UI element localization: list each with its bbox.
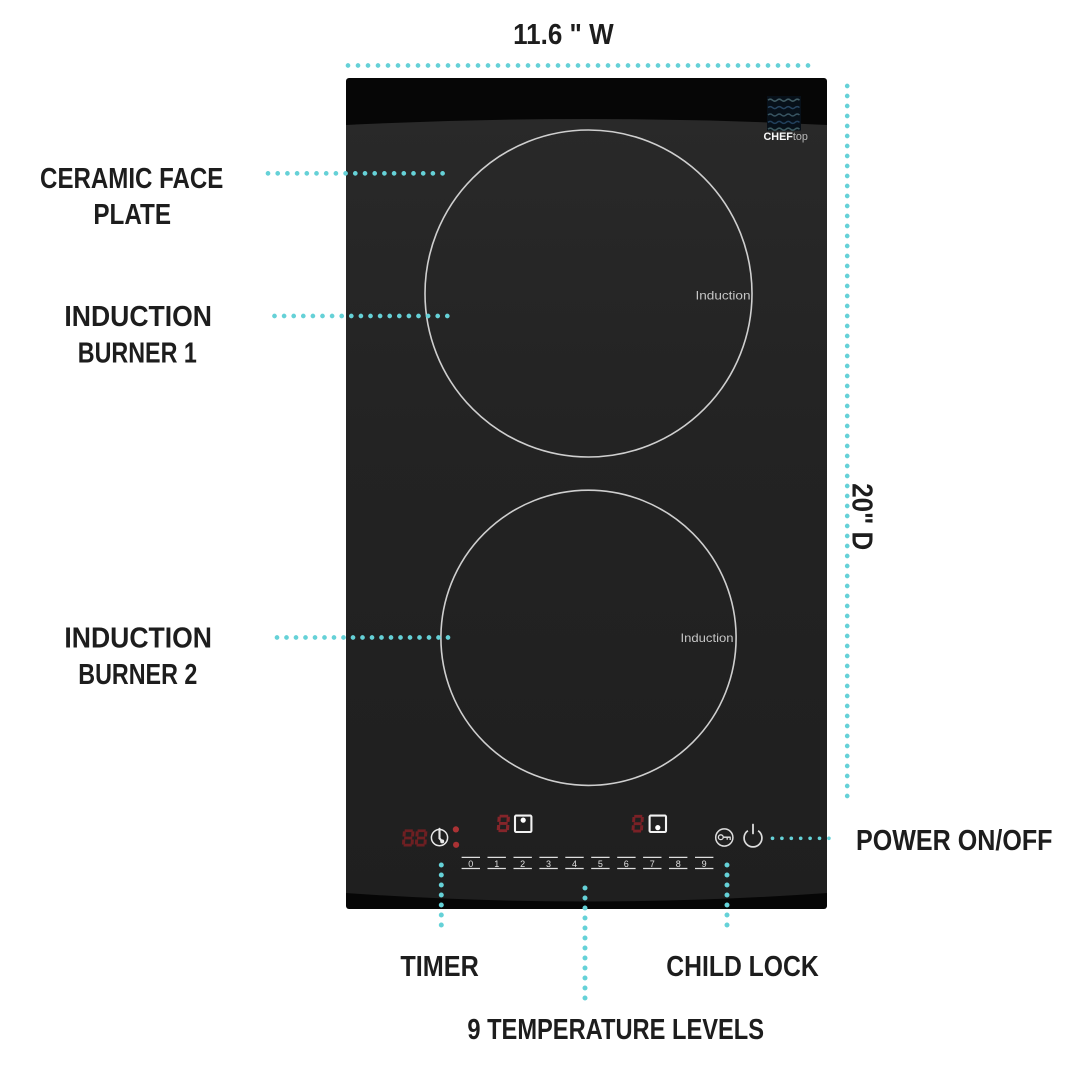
svg-text:7: 7: [650, 859, 655, 869]
svg-text:PLATE: PLATE: [93, 199, 171, 231]
svg-text:9 TEMPERATURE LEVELS: 9 TEMPERATURE LEVELS: [467, 1014, 764, 1046]
svg-text:INDUCTION: INDUCTION: [64, 301, 212, 333]
svg-text:0: 0: [468, 859, 473, 869]
svg-text:6: 6: [624, 859, 629, 869]
svg-text:4: 4: [572, 859, 577, 869]
svg-text:INDUCTION: INDUCTION: [64, 622, 212, 654]
svg-text:TIMER: TIMER: [400, 951, 478, 983]
svg-text:8: 8: [676, 859, 681, 869]
svg-text:3: 3: [546, 859, 551, 869]
svg-text:11.6 " W: 11.6 " W: [513, 19, 614, 51]
svg-text:Induction: Induction: [696, 289, 751, 303]
svg-text:CHEFtop: CHEFtop: [764, 131, 808, 143]
svg-text:20" D: 20" D: [845, 483, 877, 550]
svg-text:2: 2: [520, 859, 525, 869]
svg-text:CHILD LOCK: CHILD LOCK: [666, 951, 819, 983]
svg-text:POWER ON/OFF: POWER ON/OFF: [856, 825, 1053, 857]
svg-text:1: 1: [494, 859, 499, 869]
svg-text:BURNER 1: BURNER 1: [78, 338, 197, 370]
svg-text:Induction: Induction: [681, 631, 734, 645]
svg-text:5: 5: [598, 859, 603, 869]
svg-text:BURNER 2: BURNER 2: [78, 659, 197, 691]
svg-text:9: 9: [702, 859, 707, 869]
svg-text:CERAMIC FACE: CERAMIC FACE: [40, 163, 223, 195]
